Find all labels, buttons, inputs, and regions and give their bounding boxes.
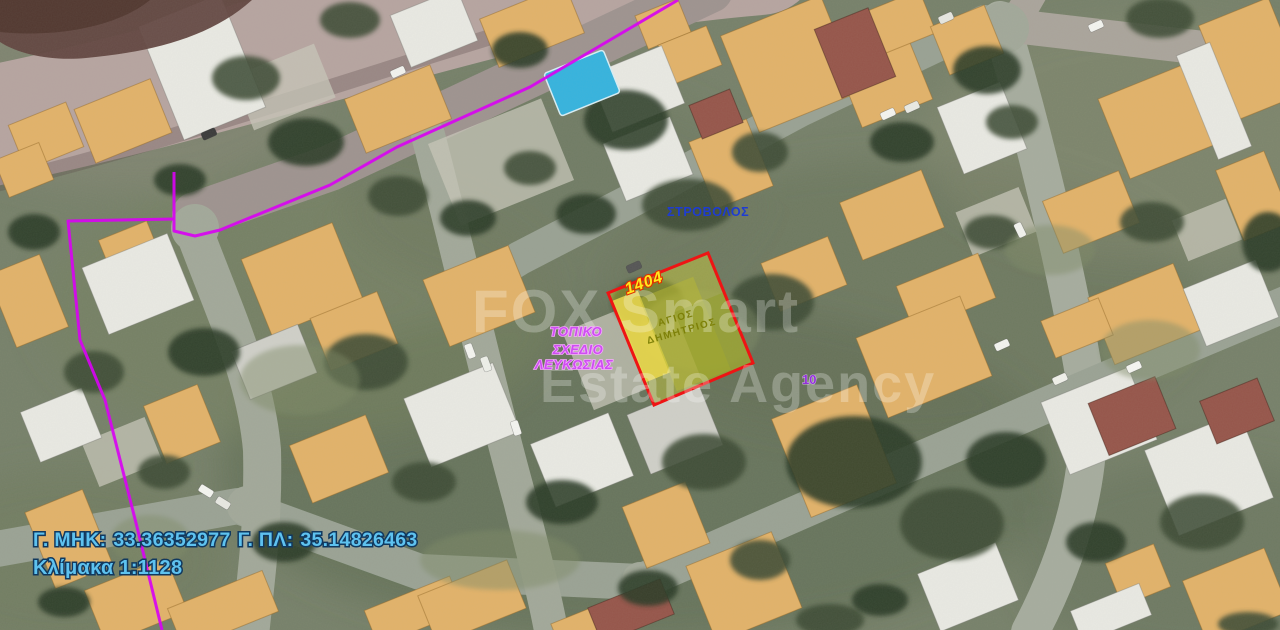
coordinates-line: Γ. ΜΗΚ:33.36352977Γ. ΠΛ:35.14826463 xyxy=(33,529,418,551)
plan-name-line3: ΛΕΥΚΩΣΙΑΣ xyxy=(534,357,613,372)
satellite-map: FOX Smart Estate Agency ΣΤΡΟΒΟΛΟΣ 1404 Α… xyxy=(0,0,1280,630)
scale-label: Κλίμακα 1:1128 xyxy=(33,557,182,579)
plan-name-line2: ΣΧΕΔΙΟ xyxy=(552,342,603,357)
longitude-label: Γ. ΜΗΚ: xyxy=(33,529,106,551)
latitude-label: Γ. ΠΛ: xyxy=(238,529,294,551)
area-label: ΣΤΡΟΒΟΛΟΣ xyxy=(667,205,749,219)
longitude-value: 33.36352977 xyxy=(113,529,230,551)
latitude-value: 35.14826463 xyxy=(300,529,417,551)
map-canvas: FOX Smart Estate Agency ΣΤΡΟΒΟΛΟΣ 1404 Α… xyxy=(0,0,1280,630)
plan-name-line1: ΤΟΠΙΚΟ xyxy=(550,324,602,339)
road-number-label: 10 xyxy=(802,372,816,387)
